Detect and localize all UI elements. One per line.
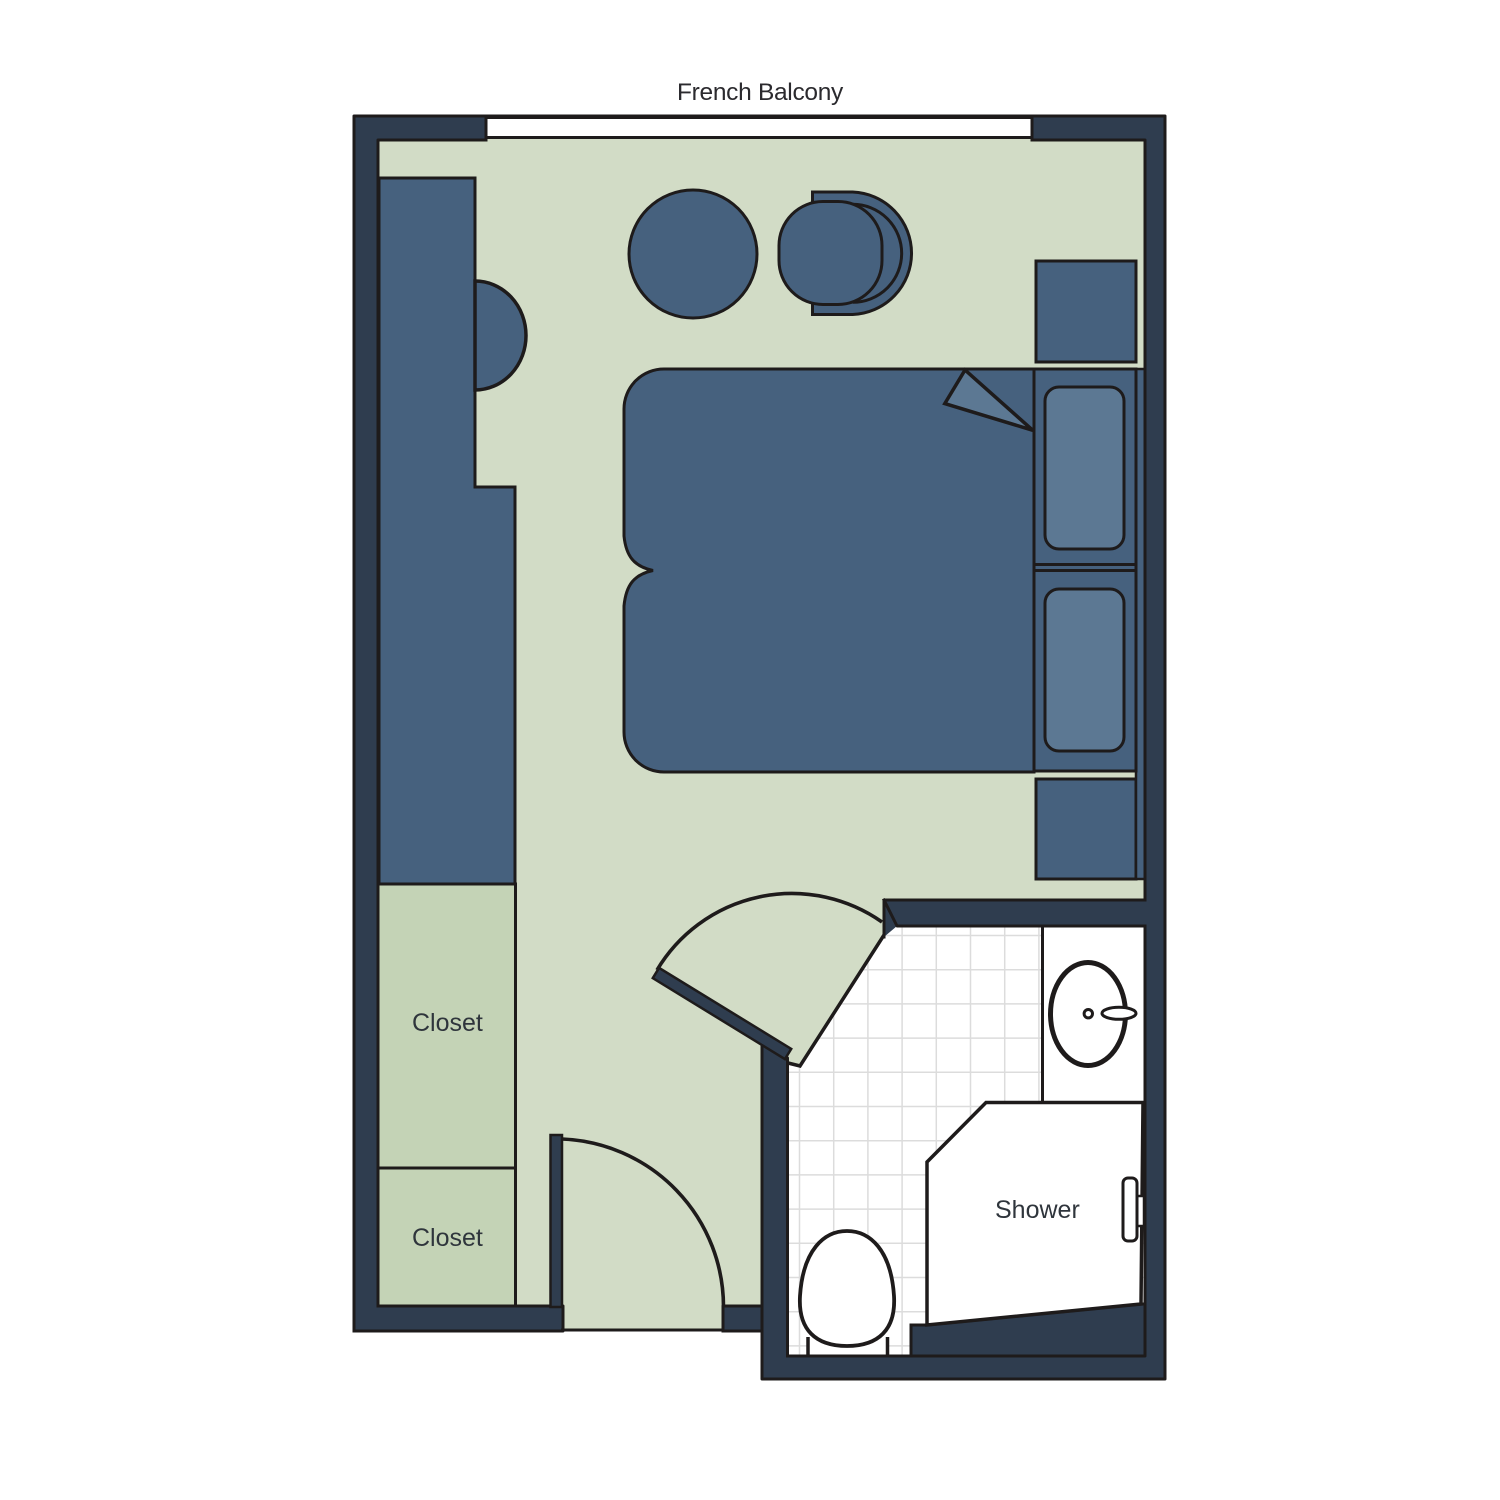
svg-text:Closet: Closet — [412, 1009, 483, 1037]
svg-text:Closet: Closet — [412, 1224, 483, 1252]
svg-text:French Balcony: French Balcony — [677, 79, 844, 106]
svg-text:Shower: Shower — [995, 1196, 1080, 1224]
